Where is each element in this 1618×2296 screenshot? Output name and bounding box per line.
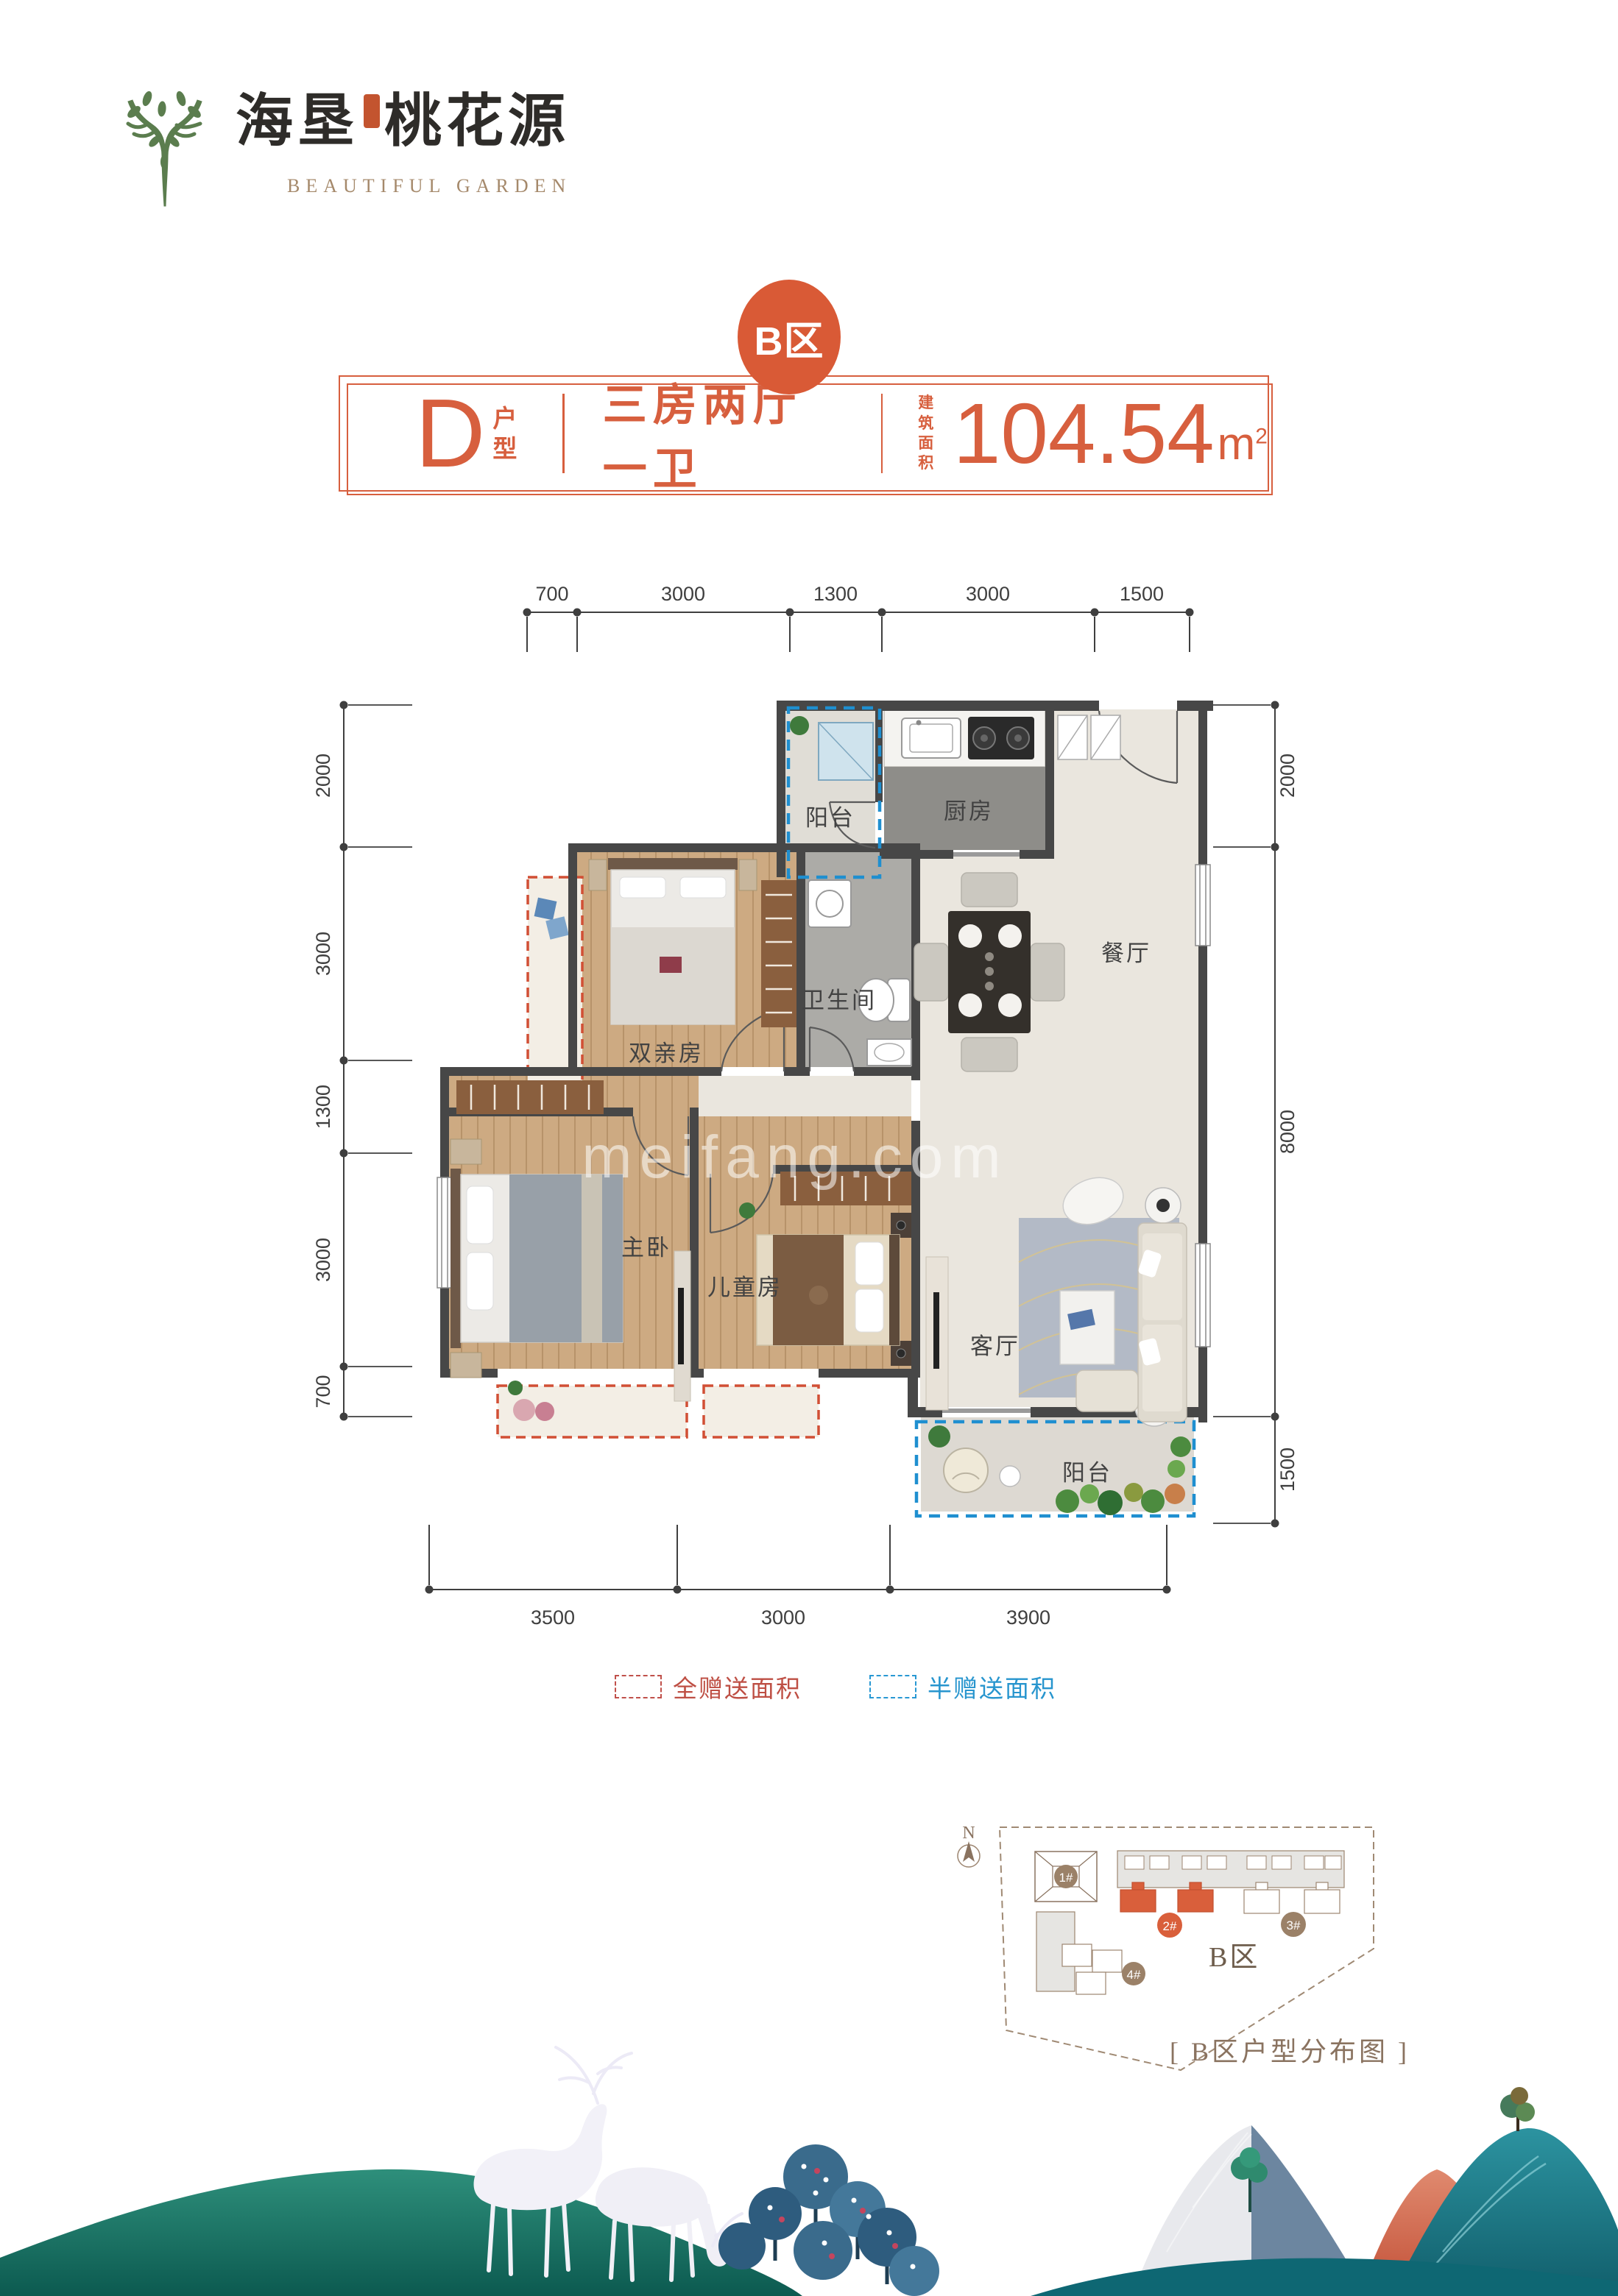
balcony-sliding-door — [942, 1409, 1031, 1413]
dim-right-3: 1500 — [1276, 1448, 1299, 1492]
room-label-parents-room: 双亲房 — [629, 1041, 704, 1066]
dim-bottom-2: 3000 — [761, 1606, 805, 1629]
dimension-chain-right: 2000 8000 1500 — [1213, 702, 1299, 1527]
legend-item-half-gift: 半赠送面积 — [869, 1669, 1056, 1704]
bay-pillow-pink-1 — [513, 1399, 535, 1421]
dim-top-4: 3000 — [966, 583, 1010, 605]
armchair — [1076, 1370, 1138, 1411]
building-4-label: 4# — [1127, 1968, 1141, 1982]
kitchen-sink — [902, 718, 961, 758]
room-label-dining: 餐厅 — [1101, 940, 1151, 966]
legend: 全赠送面积 半赠送面积 — [615, 1669, 1056, 1704]
dim-left-3: 1300 — [312, 1085, 334, 1129]
room-label-kids-room: 儿童房 — [707, 1275, 782, 1300]
kitchen-sliding-door — [953, 852, 1020, 857]
dim-bottom-1: 3500 — [531, 1606, 575, 1629]
dim-right-2: 8000 — [1276, 1110, 1299, 1154]
site-area-label: B区 — [1209, 1942, 1260, 1973]
compass-icon — [958, 1841, 980, 1867]
dimension-chain-bottom: 3500 3000 3900 — [426, 1525, 1170, 1629]
legend-label-half-gift: 半赠送面积 — [928, 1669, 1056, 1704]
bay-pillow-blue-1 — [534, 898, 557, 921]
dim-top-1: 700 — [535, 583, 568, 605]
site-slab-building — [1117, 1851, 1344, 1888]
art-tree-right — [1500, 2087, 1535, 2131]
dim-left-5: 700 — [312, 1375, 334, 1408]
site-towers: 2# 3# — [1120, 1882, 1340, 1938]
legend-swatch-full-gift — [615, 1675, 662, 1698]
dim-top-5: 1500 — [1120, 583, 1164, 605]
dim-bottom-3: 3900 — [1006, 1606, 1050, 1629]
zone-badge: B区 — [738, 280, 841, 394]
watermark: meifang.com — [582, 1124, 1008, 1191]
room-label-kitchen: 厨房 — [944, 798, 994, 824]
building-1: 1# — [1035, 1852, 1097, 1902]
bay-pillow-pink-2 — [535, 1402, 554, 1421]
room-label-balcony-south: 阳台 — [1062, 1460, 1112, 1486]
legend-label-full-gift: 全赠送面积 — [673, 1669, 802, 1704]
room-label-master-bedroom: 主卧 — [621, 1235, 671, 1261]
full-gift-bay-kids — [704, 1386, 819, 1437]
corridor-floor — [699, 1076, 911, 1116]
bottom-artwork — [0, 2047, 1618, 2296]
dim-top-3: 1300 — [813, 583, 858, 605]
dimension-chain-top: 700 3000 1300 3000 1500 — [524, 583, 1193, 652]
dim-left-4: 3000 — [312, 1238, 334, 1282]
dimension-chain-left: 2000 3000 1300 3000 700 — [312, 702, 412, 1420]
dim-top-2: 3000 — [661, 583, 705, 605]
parents-room-bed — [589, 858, 757, 1024]
dim-right-1: 2000 — [1276, 754, 1299, 798]
parents-room-wardrobe — [761, 880, 796, 1027]
living-tv — [933, 1292, 939, 1369]
master-tv — [678, 1288, 684, 1364]
egg-chair — [944, 1448, 988, 1492]
building-2-label: 2# — [1163, 1919, 1177, 1933]
legend-item-full-gift: 全赠送面积 — [615, 1669, 802, 1704]
kitchen-stove — [968, 717, 1034, 759]
building-1-label: 1# — [1059, 1871, 1073, 1885]
teddy-bear — [809, 1286, 828, 1305]
north-label: N — [962, 1824, 975, 1843]
coffee-table — [1060, 1291, 1114, 1364]
site-map: N 1# — [958, 1824, 1410, 2070]
bed-runner-accent — [660, 957, 682, 973]
site-map-caption: [ B区户型分布图 ] — [1170, 2037, 1410, 2066]
room-label-living-room: 客厅 — [970, 1333, 1020, 1359]
room-label-balcony-north: 阳台 — [805, 805, 855, 831]
dim-left-2: 3000 — [312, 932, 334, 976]
plant-balcony-north — [790, 716, 809, 735]
washing-machine — [808, 880, 851, 927]
legend-swatch-half-gift — [869, 1675, 916, 1698]
dim-left-1: 2000 — [312, 754, 334, 798]
page: { "logo": { "cn_part1": "海垦", "cn_part2"… — [0, 0, 1618, 2296]
building-3-label: 3# — [1287, 1918, 1301, 1932]
bathroom-basin — [867, 1039, 911, 1066]
room-label-bathroom: 卫生间 — [802, 988, 877, 1013]
